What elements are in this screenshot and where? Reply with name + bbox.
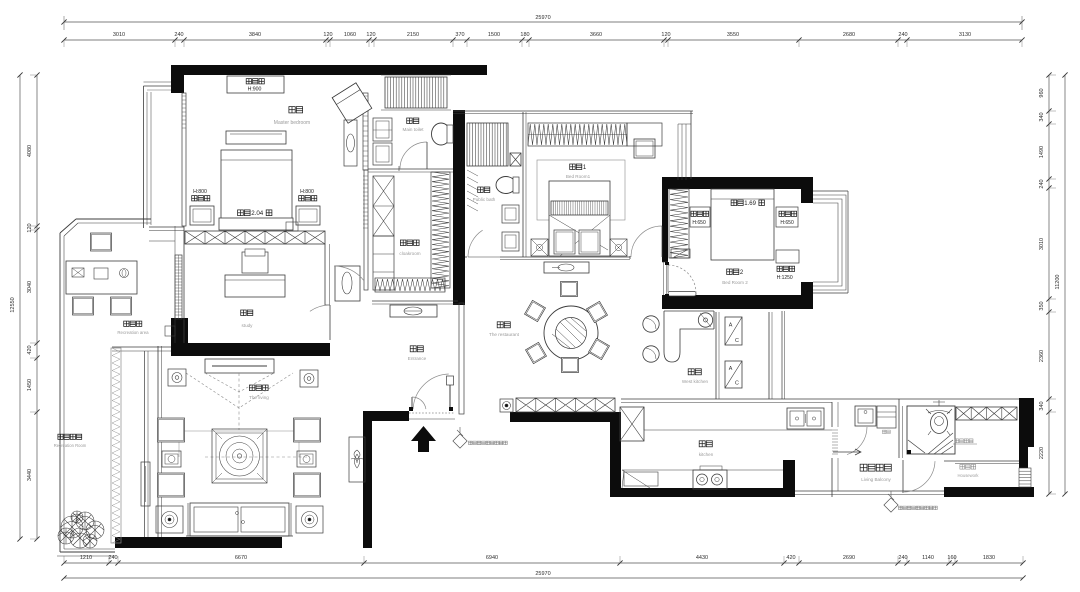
svg-text:3040: 3040 [27, 281, 33, 293]
svg-text:A: A [729, 323, 733, 329]
svg-text:370: 370 [455, 32, 464, 38]
svg-text:The living: The living [249, 395, 269, 400]
svg-text:Bed Room1: Bed Room1 [566, 174, 591, 179]
svg-text:3130: 3130 [959, 32, 971, 38]
svg-text:cloakroom: cloakroom [399, 251, 420, 256]
svg-text:340: 340 [1039, 112, 1045, 121]
svg-text:2680: 2680 [843, 32, 855, 38]
svg-text:1140: 1140 [922, 555, 934, 561]
svg-text:11200: 11200 [1055, 275, 1061, 290]
svg-text:25970: 25970 [535, 571, 550, 577]
svg-text:Master bedroom: Master bedroom [274, 120, 310, 126]
svg-text:2360: 2360 [1039, 350, 1045, 362]
svg-text:120: 120 [323, 32, 332, 38]
svg-text:2220: 2220 [1039, 447, 1045, 459]
svg-text:A: A [729, 366, 733, 372]
svg-text:120: 120 [27, 223, 33, 232]
svg-text:1500: 1500 [488, 32, 500, 38]
svg-text:3660: 3660 [590, 32, 602, 38]
svg-text:4430: 4430 [696, 555, 708, 561]
svg-text:25970: 25970 [535, 15, 550, 21]
svg-text:3440: 3440 [27, 469, 33, 481]
svg-text:1060: 1060 [344, 32, 356, 38]
svg-text:120: 120 [661, 32, 670, 38]
svg-text:160: 160 [947, 555, 956, 561]
svg-text:1.69: 1.69 [744, 201, 756, 207]
svg-text:3010: 3010 [113, 32, 125, 38]
svg-text:240: 240 [174, 32, 183, 38]
svg-text:1450: 1450 [27, 379, 33, 391]
svg-text:kitchen: kitchen [699, 452, 714, 457]
svg-text:12550: 12550 [10, 297, 16, 312]
svg-text:C: C [735, 338, 739, 344]
svg-text:2150: 2150 [407, 32, 419, 38]
svg-text:240: 240 [1039, 179, 1045, 188]
svg-text:Main toilet: Main toilet [403, 127, 425, 132]
svg-text:H:1250: H:1250 [777, 275, 793, 281]
svg-text:H:800: H:800 [193, 189, 207, 195]
svg-text:H:650: H:650 [780, 220, 794, 226]
svg-text:3010: 3010 [1039, 238, 1045, 250]
svg-text:1490: 1490 [1039, 146, 1045, 158]
svg-text:2690: 2690 [843, 555, 855, 561]
svg-text:H:800: H:800 [300, 189, 314, 195]
svg-text:420: 420 [786, 555, 795, 561]
svg-text:The restaurant: The restaurant [489, 332, 520, 337]
svg-text:180: 180 [520, 32, 529, 38]
svg-text:350: 350 [1039, 301, 1045, 310]
svg-text:Recreation area: Recreation area [117, 330, 149, 335]
svg-text:study: study [242, 323, 254, 328]
svg-text:340: 340 [1039, 401, 1045, 410]
svg-text:960: 960 [1039, 88, 1045, 97]
svg-text:120: 120 [366, 32, 375, 38]
svg-text:420: 420 [27, 345, 33, 354]
svg-text:C: C [735, 381, 739, 387]
svg-text:Housework: Housework [958, 473, 980, 478]
svg-text:West kitchen: West kitchen [682, 379, 709, 384]
svg-text:Public bath: Public bath [473, 197, 496, 202]
svg-text:Living Balcony: Living Balcony [861, 477, 891, 482]
svg-text:6940: 6940 [486, 555, 498, 561]
svg-text:240: 240 [898, 555, 907, 561]
svg-text:4080: 4080 [27, 145, 33, 157]
svg-text:2.04: 2.04 [251, 210, 264, 217]
svg-text:6670: 6670 [235, 555, 247, 561]
svg-text:3550: 3550 [727, 32, 739, 38]
svg-text:Recreation Room: Recreation Room [54, 443, 87, 448]
svg-text:H:650: H:650 [692, 220, 706, 226]
svg-text:Bed Room 2: Bed Room 2 [722, 280, 748, 285]
svg-text:240: 240 [898, 32, 907, 38]
svg-text:3840: 3840 [249, 32, 261, 38]
svg-text:Entrance: Entrance [408, 356, 427, 361]
svg-text:1830: 1830 [983, 555, 995, 561]
svg-text:H:900: H:900 [248, 86, 262, 92]
